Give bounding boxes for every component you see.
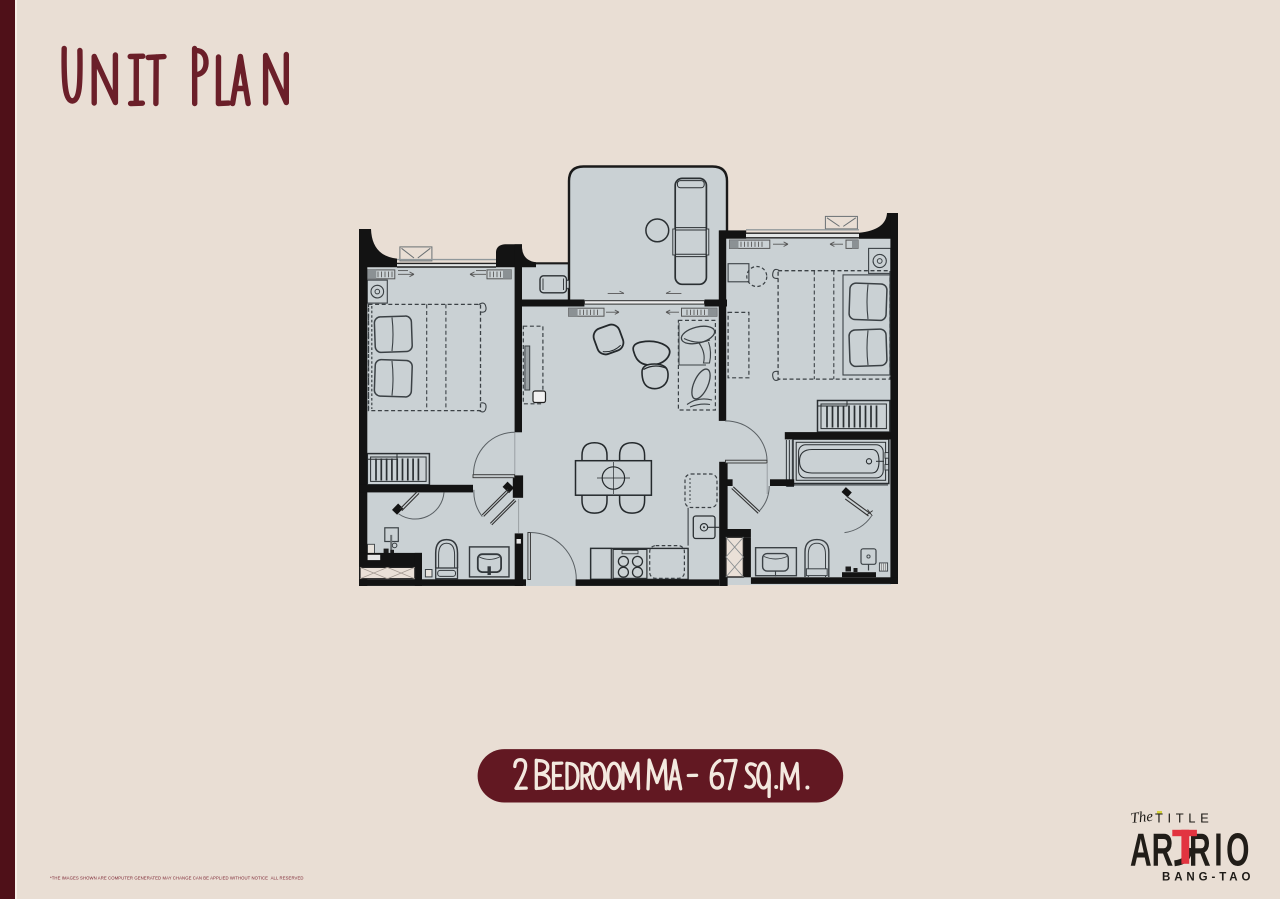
svg-text:BANG-TAO: BANG-TAO [1162, 872, 1254, 884]
svg-text:AR: AR [1130, 825, 1173, 876]
svg-text:TITLE: TITLE [1155, 811, 1213, 826]
svg-text:RIO: RIO [1189, 825, 1253, 876]
